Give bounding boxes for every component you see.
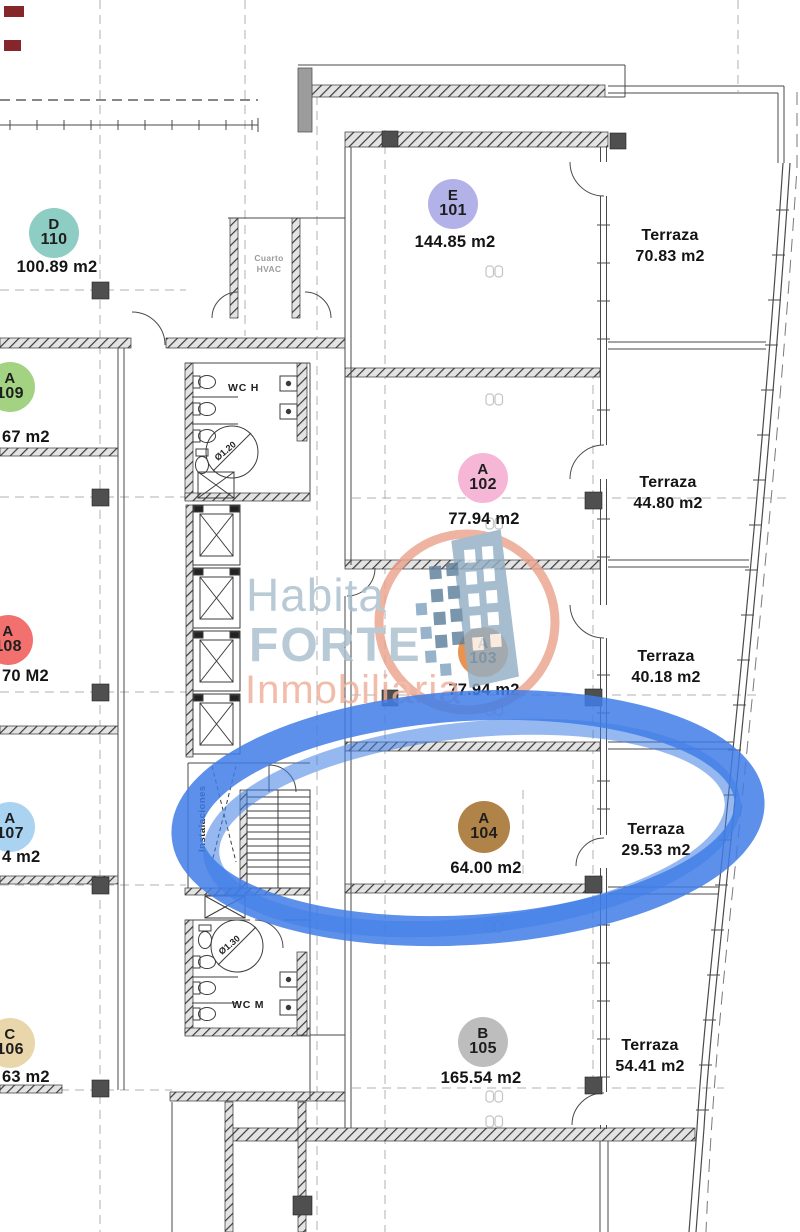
- unit-label-108: A 108: [0, 615, 33, 665]
- column-markers: [92, 131, 626, 1215]
- terrace-label-4: Terraza 29.53 m2: [586, 820, 726, 862]
- terrace-area: 70.83 m2: [600, 247, 740, 268]
- terrace-label-5: Terraza 54.41 m2: [580, 1036, 720, 1078]
- wc-m-label: WC M: [232, 999, 264, 1011]
- unit-area-102: 77.94 m2: [424, 510, 544, 529]
- unit-area-107: 4 m2: [2, 848, 40, 867]
- stairs: [247, 790, 310, 888]
- unit-number: 104: [470, 826, 498, 843]
- unit-area-103: 77.94 m2: [424, 681, 544, 700]
- unit-area-104: 64.00 m2: [426, 859, 546, 878]
- terrace-label-2: Terraza 44.80 m2: [598, 473, 738, 515]
- instalaciones-brace: [212, 766, 236, 862]
- unit-letter: E: [448, 188, 458, 204]
- unit-label-109: A 109: [0, 362, 35, 412]
- terrace-name: Terraza: [586, 820, 726, 841]
- terrace-area: 40.18 m2: [596, 668, 736, 689]
- unit-letter: A: [477, 462, 488, 478]
- unit-circle-105: B 105: [458, 1017, 508, 1067]
- unit-number: 106: [0, 1042, 24, 1059]
- hvac-room-label: Cuarto HVAC: [246, 253, 292, 274]
- unit-area-108: 70 M2: [2, 667, 49, 686]
- unit-letter: B: [477, 1026, 488, 1042]
- hvac-line1: Cuarto: [246, 253, 292, 264]
- instalaciones-label: Instalaciones: [197, 785, 208, 852]
- red-mark: [4, 6, 24, 17]
- terrace-label-1: Terraza 70.83 m2: [600, 226, 740, 268]
- unit-label-102: A 102: [458, 453, 508, 503]
- floorplan-page: D 110 100.89 m2 E 101 144.85 m2 A 102 77…: [0, 0, 800, 1232]
- unit-area-101: 144.85 m2: [395, 233, 515, 252]
- unit-area-105: 165.54 m2: [421, 1069, 541, 1088]
- terrace-area: 29.53 m2: [586, 841, 726, 862]
- unit-number: 109: [0, 386, 24, 403]
- unit-letter: D: [48, 217, 59, 233]
- unit-label-105: B 105: [458, 1017, 508, 1067]
- unit-circle-107: A 107: [0, 802, 35, 852]
- unit-circle-106: C 106: [0, 1018, 35, 1068]
- unit-circle-102: A 102: [458, 453, 508, 503]
- unit-letter: A: [4, 371, 15, 387]
- terrace-name: Terraza: [600, 226, 740, 247]
- red-mark: [4, 40, 21, 51]
- unit-number: 103: [469, 651, 497, 668]
- unit-area-109: 67 m2: [2, 428, 50, 447]
- unit-letter: A: [2, 624, 13, 640]
- unit-circle-104: A 104: [458, 801, 510, 853]
- terrace-name: Terraza: [598, 473, 738, 494]
- unit-label-106: C 106: [0, 1018, 35, 1068]
- hvac-line2: HVAC: [246, 264, 292, 275]
- elevator-shafts: [193, 505, 240, 754]
- unit-label-107: A 107: [0, 802, 35, 852]
- parapet-end-wall: [298, 68, 312, 132]
- terrace-area: 54.41 m2: [580, 1057, 720, 1078]
- unit-circle-108: A 108: [0, 615, 33, 665]
- unit-number: 101: [439, 203, 467, 220]
- terrace-area: 44.80 m2: [598, 494, 738, 515]
- unit-area-110: 100.89 m2: [0, 258, 117, 277]
- unit-number: 110: [41, 232, 68, 249]
- unit-letter: A: [477, 636, 488, 652]
- unit-number: 102: [469, 477, 497, 494]
- wc-h-label: WC H: [228, 382, 259, 394]
- unit-number: 107: [0, 826, 24, 843]
- unit-circle-103: A 103: [458, 627, 508, 677]
- unit-circle-101: E 101: [428, 179, 478, 229]
- unit-letter: A: [4, 811, 15, 827]
- unit-label-103: A 103: [458, 627, 508, 677]
- terrace-name: Terraza: [596, 647, 736, 668]
- unit-number: 108: [0, 639, 22, 656]
- unit-letter: A: [478, 811, 489, 827]
- unit-circle-109: A 109: [0, 362, 35, 412]
- unit-area-106: 63 m2: [2, 1068, 50, 1087]
- terrace-label-3: Terraza 40.18 m2: [596, 647, 736, 689]
- unit-label-101: E 101: [428, 179, 478, 229]
- unit-letter: C: [4, 1027, 15, 1043]
- unit-label-110: D 110: [29, 208, 79, 258]
- terrace-name: Terraza: [580, 1036, 720, 1057]
- unit-circle-110: D 110: [29, 208, 79, 258]
- unit-label-104: A 104: [458, 801, 510, 853]
- unit-number: 105: [469, 1041, 497, 1058]
